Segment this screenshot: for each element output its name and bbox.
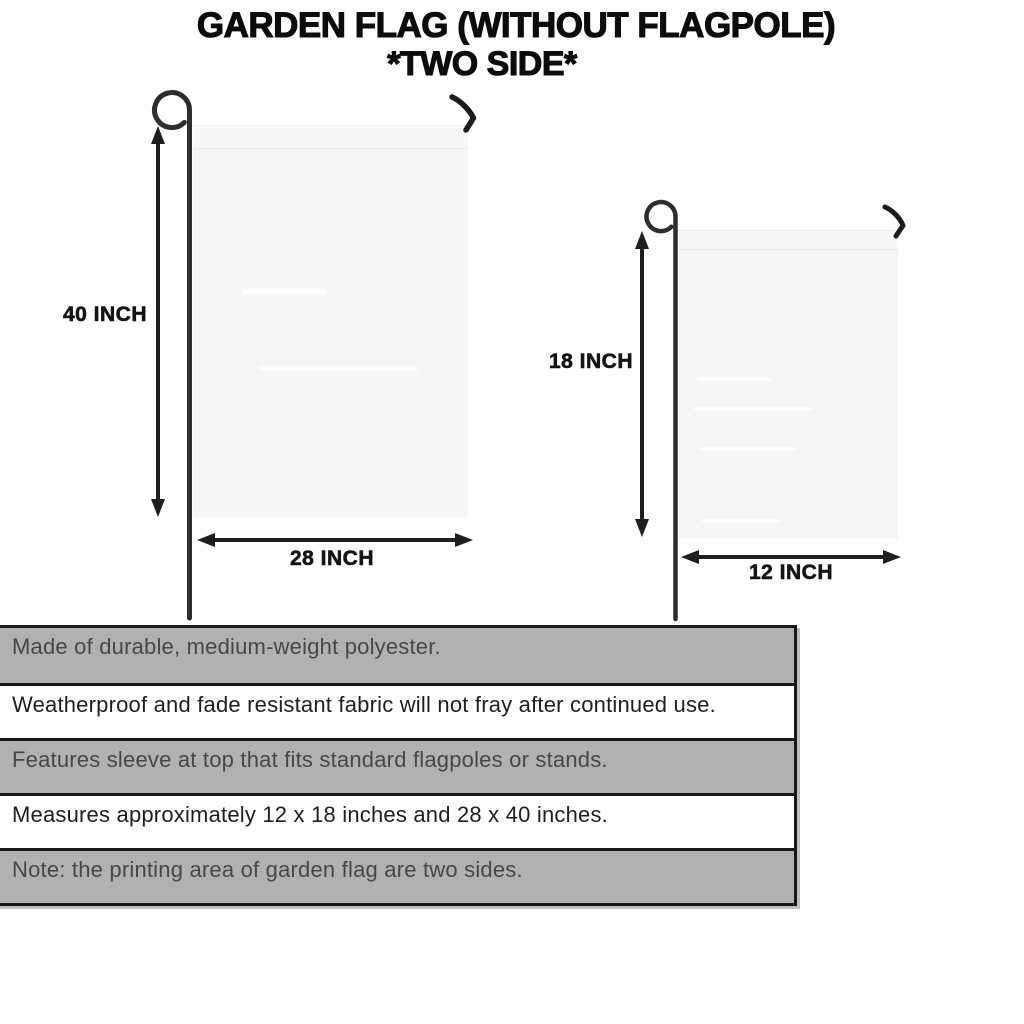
small-flag-height-arrow xyxy=(635,231,649,537)
large-flag-width-arrow xyxy=(197,533,473,547)
spec-text: Measures approximately 12 x 18 inches an… xyxy=(12,802,608,827)
garden-flag-infographic: GARDEN FLAG (WITHOUT FLAGPOLE) *TWO SIDE… xyxy=(0,0,1024,1024)
spec-text: Made of durable, medium-weight polyester… xyxy=(12,634,441,659)
large-flag-height-label: 40 INCH xyxy=(25,303,185,327)
small-flag-pole-loop-icon xyxy=(647,202,676,619)
spec-row-material: Made of durable, medium-weight polyester… xyxy=(0,628,794,683)
spec-text: Features sleeve at top that fits standar… xyxy=(12,747,608,772)
small-flag-height-label: 18 INCH xyxy=(511,350,671,374)
large-flag-width-label: 28 INCH xyxy=(252,547,412,571)
spec-text: Note: the printing area of garden flag a… xyxy=(12,857,523,882)
spec-row-sleeve: Features sleeve at top that fits standar… xyxy=(0,738,794,793)
spec-table: Made of durable, medium-weight polyester… xyxy=(0,625,797,906)
spec-row-weatherproof: Weatherproof and fade resistant fabric w… xyxy=(0,683,794,738)
spec-row-note: Note: the printing area of garden flag a… xyxy=(0,848,794,903)
small-flag-hook-icon xyxy=(885,207,903,236)
large-flag-hook-icon xyxy=(452,97,474,130)
spec-row-measures: Measures approximately 12 x 18 inches an… xyxy=(0,793,794,848)
spec-text: Weatherproof and fade resistant fabric w… xyxy=(12,692,716,717)
small-flag-width-label: 12 INCH xyxy=(711,561,871,585)
